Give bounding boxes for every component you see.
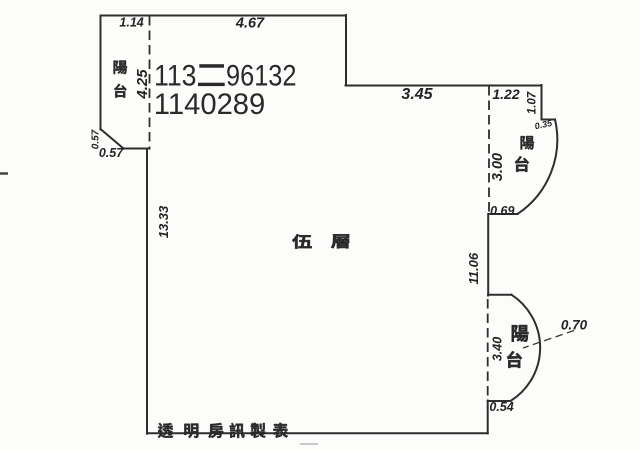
svg-text:1.22: 1.22 (492, 86, 519, 102)
svg-text:1140289: 1140289 (154, 88, 265, 121)
svg-text:3.40: 3.40 (491, 337, 505, 361)
svg-text:3.45: 3.45 (401, 86, 433, 103)
svg-text:0.35: 0.35 (534, 118, 554, 132)
svg-text:1.07: 1.07 (527, 91, 539, 114)
svg-text:13.33: 13.33 (156, 205, 171, 238)
svg-text:1.14: 1.14 (119, 15, 143, 29)
svg-text:0.54: 0.54 (489, 400, 513, 414)
svg-text:4.67: 4.67 (235, 16, 265, 32)
svg-text:11.06: 11.06 (466, 252, 481, 284)
svg-text:3.00: 3.00 (490, 153, 506, 181)
svg-text:4.25: 4.25 (134, 69, 151, 100)
svg-text:0.69: 0.69 (490, 204, 514, 218)
svg-text:0.57: 0.57 (99, 146, 124, 160)
svg-text:0.70: 0.70 (561, 317, 588, 332)
